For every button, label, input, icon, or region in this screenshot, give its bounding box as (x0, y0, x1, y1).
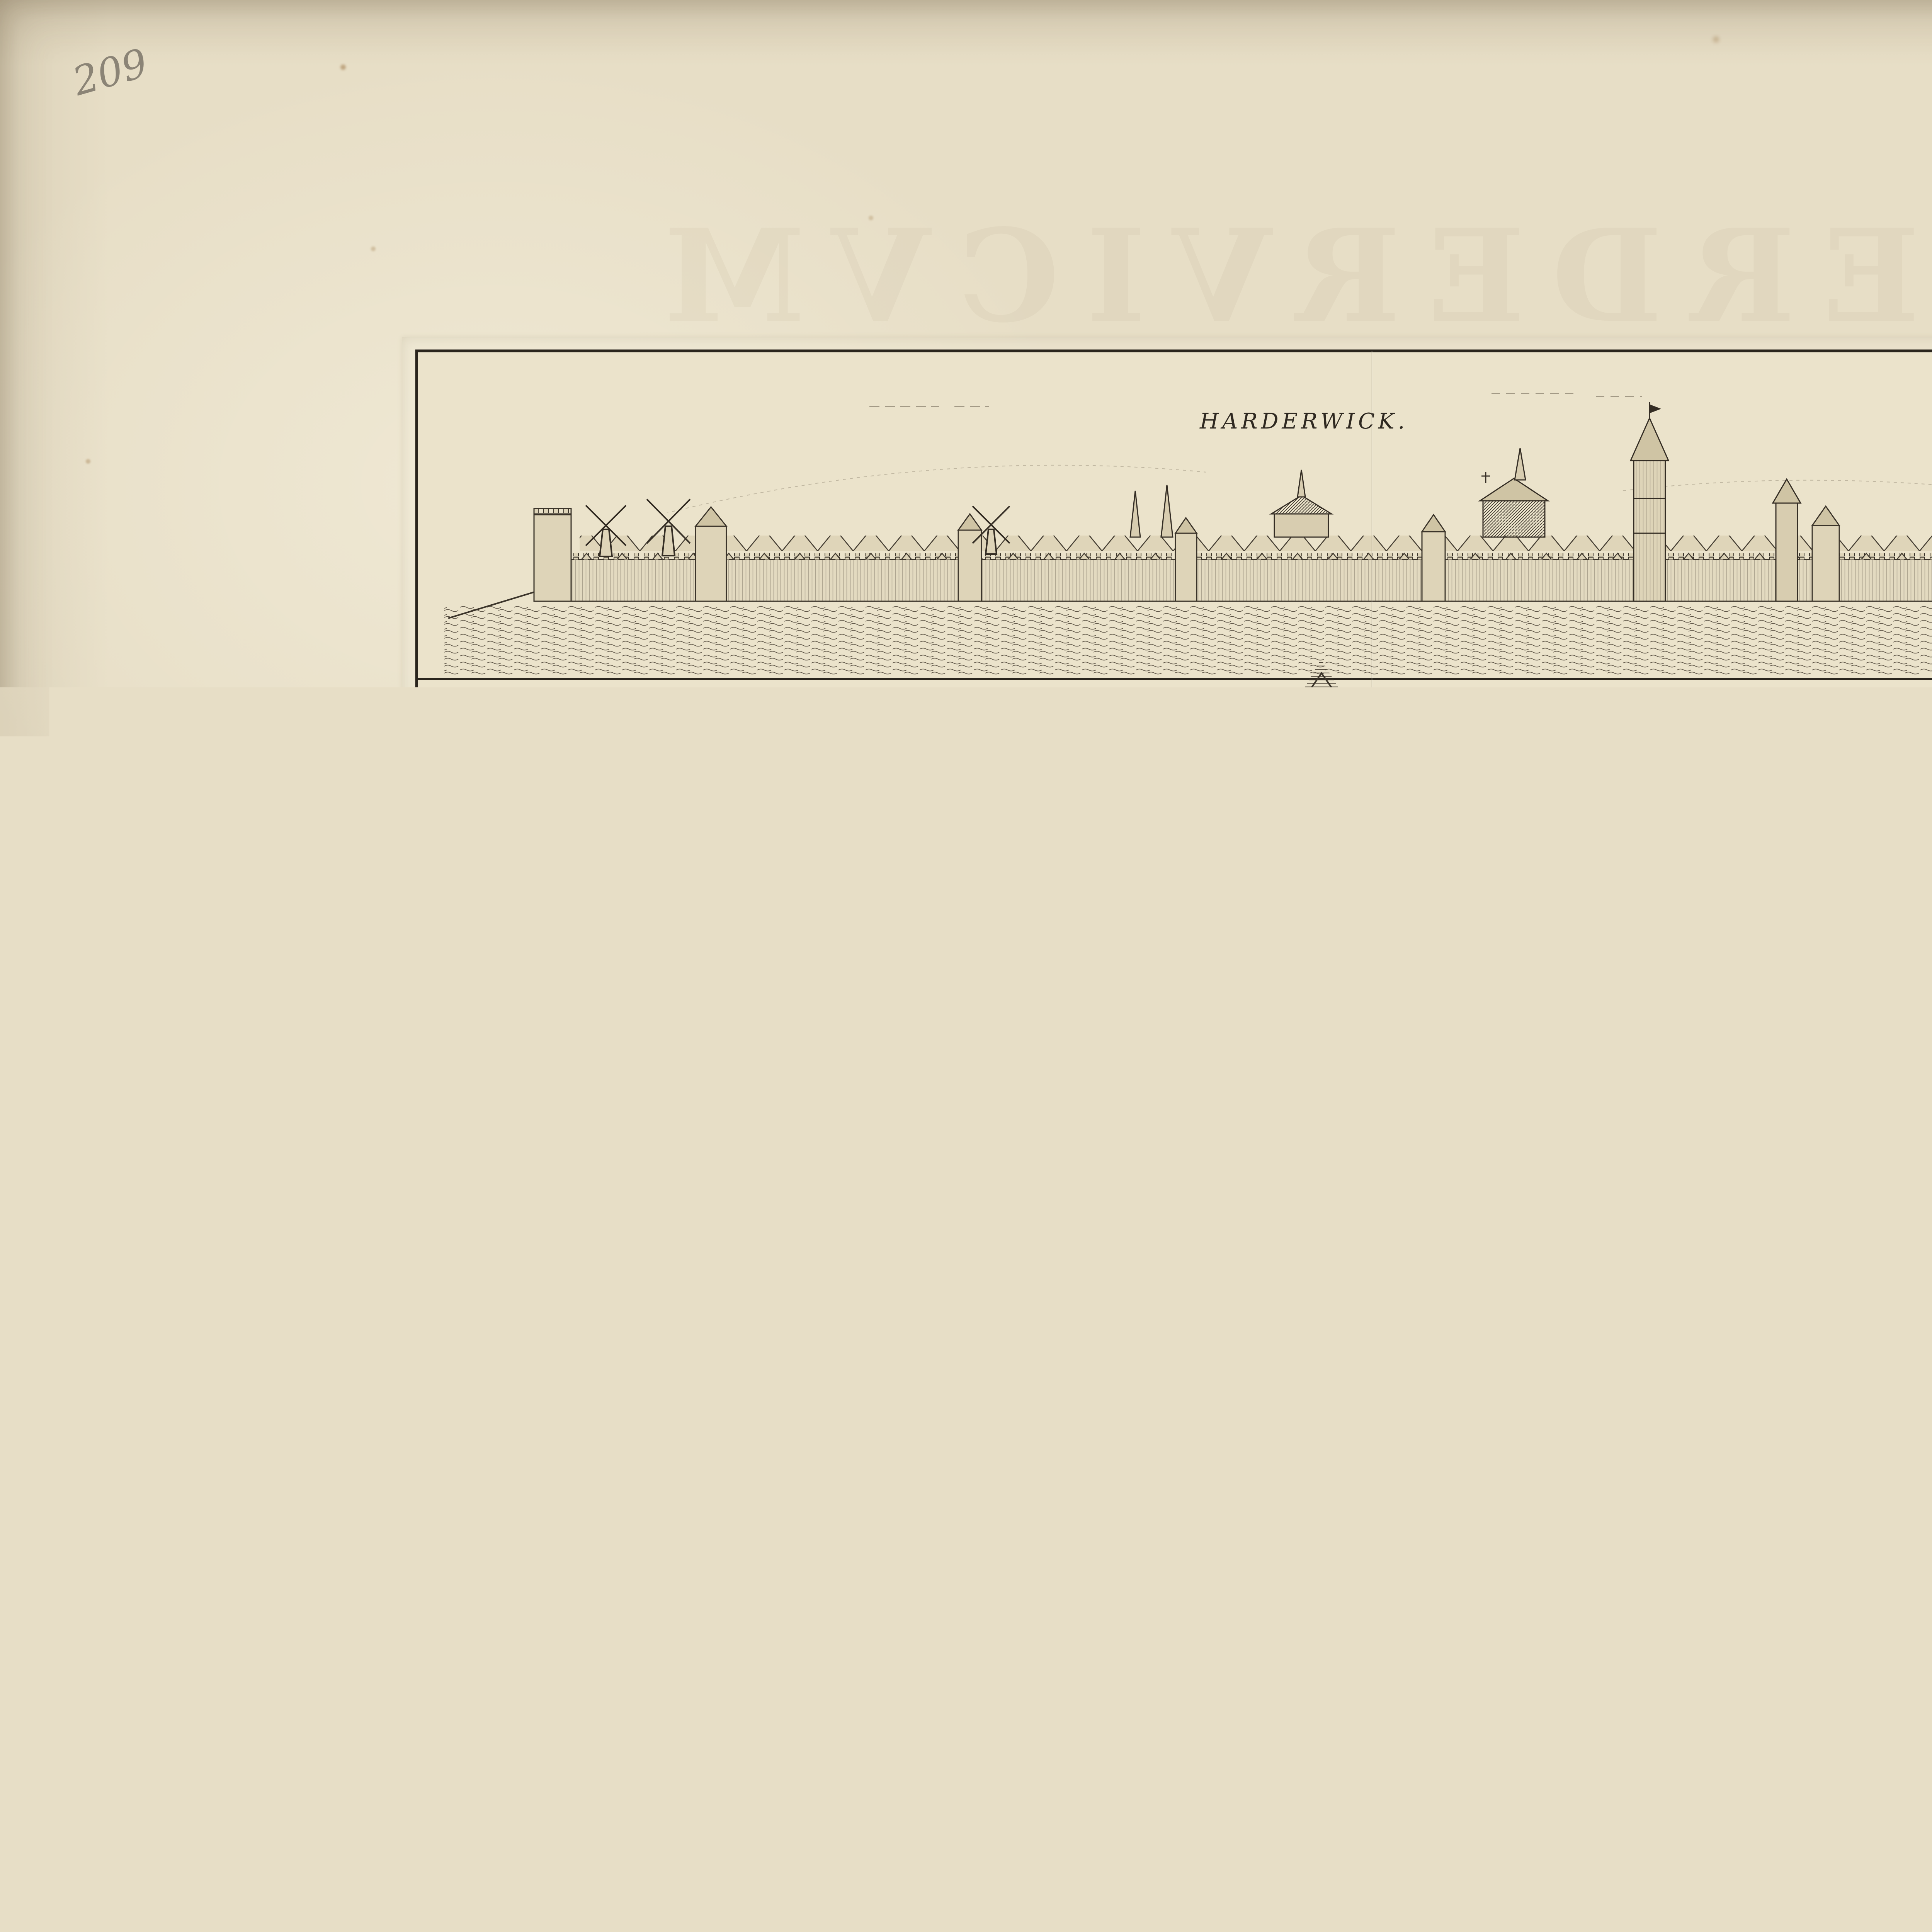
street-number: 15 (433, 978, 453, 996)
street-number: 33 (656, 778, 676, 796)
street-name: Brugh straet (453, 961, 536, 976)
street-name: de Hooge straet (546, 779, 650, 794)
street-legend-item: 35Groot oosterwyck (656, 814, 857, 832)
street-name: Schomaeker straet (546, 925, 668, 940)
plate-reference: Pag. 39. Lib. 1. (458, 1711, 576, 1729)
street-number: 31 (656, 742, 676, 760)
street-legend-item: 38Broeren (656, 869, 857, 887)
plate-border (417, 351, 1932, 1793)
street-number: 35 (656, 814, 676, 832)
plate-impression (402, 337, 1932, 1811)
street-number: 36 (656, 832, 676, 850)
street-name: Rabben straet (453, 979, 545, 994)
street-name: Heer Aelt straetjen (546, 725, 670, 740)
street-name: Vismarckt (676, 834, 741, 849)
sea-label-part2: ZEE. (1685, 1662, 1932, 1690)
street-name: Kleen ooserwyck (676, 798, 785, 813)
gate-groote-poorte (1805, 751, 1829, 799)
street-legend-item: 26Haver straetien (526, 905, 692, 923)
street-number: 2 (433, 742, 453, 760)
street-number: 19 (526, 778, 546, 796)
street-number: 5 (433, 796, 453, 814)
street-name: Haver straetien (546, 906, 648, 922)
map-engraving (0, 0, 1932, 1932)
street-number: 22 (526, 832, 546, 850)
street-number: 20 (526, 796, 546, 814)
street-legend-item: 27Schomaeker straet (526, 923, 692, 941)
panorama-windmill-icons (586, 499, 1932, 556)
street-name: Burgh straet (453, 870, 536, 885)
street-legend-item: 36Vismarckt (656, 832, 857, 850)
klooster-church (736, 1102, 804, 1155)
street-legend-title: Namen vande straeten ende steeghen (494, 700, 914, 718)
street-number: 38 (656, 869, 676, 887)
street-name: de Snyder straet (546, 761, 654, 776)
street-number: 37 (656, 850, 676, 869)
street-legend-column-3: 30Vollers brinck31Groote marck straet32S… (656, 723, 857, 905)
street-number: 3 (433, 760, 453, 778)
street-number: 12 (433, 923, 453, 941)
street-name: de Beeke (676, 888, 735, 903)
street-name: Straetien achter de Nonnen (676, 761, 857, 776)
street-name: Vee straet (453, 834, 519, 849)
street-number: 13 (433, 941, 453, 959)
street-number: 28 (526, 941, 546, 959)
street-name: de Vrouwen straet (546, 743, 666, 758)
street-name: Groote marck straet (676, 743, 807, 758)
street-number: 24 (526, 869, 546, 887)
street-number: 10 (433, 887, 453, 905)
street-legend: Namen vande straeten ende steeghen 1Die … (431, 700, 914, 994)
handwritten-page-number: 209 (68, 40, 153, 105)
large-ship (1522, 1549, 1673, 1710)
broeren-church (1309, 1387, 1365, 1432)
street-name: Wullewever straet (546, 870, 664, 885)
street-number: 23 (526, 850, 546, 869)
street-legend-item: 28Voller straet (526, 941, 692, 959)
street-number: 25 (526, 887, 546, 905)
piers (1100, 1524, 1774, 1781)
street-number: 21 (526, 814, 546, 832)
street-name: Enge steeg (546, 834, 618, 849)
center-fold (1371, 351, 1372, 1794)
street-number: 17 (526, 742, 546, 760)
street-number: 39 (656, 887, 676, 905)
street-legend-item: 33het Oly straetien (656, 778, 857, 796)
street-number: 26 (526, 905, 546, 923)
street-number: 9 (433, 869, 453, 887)
street-legend-item: 31Groote marck straet (656, 742, 857, 760)
great-church (1627, 1159, 1790, 1287)
gardens (753, 846, 1932, 1144)
street-number: 18 (526, 760, 546, 778)
streets (734, 838, 1932, 1577)
street-legend-item: 32Straetien achter de Nonnen (656, 760, 857, 778)
show-through-text: HERDERVICVM (715, 201, 1932, 351)
edge-vignette (0, 0, 1932, 1932)
quay-towers (861, 1410, 1932, 1594)
street-legend-item: 15Rabben straet (433, 978, 585, 996)
street-number: 7 (433, 832, 453, 850)
street-number: 16 (526, 723, 546, 742)
street-name: het Oly straetien (676, 779, 784, 794)
paper-texture (0, 0, 1932, 1932)
street-legend-item: 39de Beeke (656, 887, 857, 905)
street-number: 27 (526, 923, 546, 941)
street-number: 8 (433, 850, 453, 869)
street-name: Koorn marct (676, 852, 757, 867)
street-legend-item: 29S. Annen straet (526, 959, 692, 978)
street-number: 34 (656, 796, 676, 814)
street-number: 30 (656, 723, 676, 742)
street-name: Vollers brinck (676, 725, 765, 740)
street-legend-item: 34Kleen ooserwyck (656, 796, 857, 814)
street-name: Weem straet (453, 798, 535, 813)
map-windmill-icons (679, 1013, 822, 1346)
panorama-art (444, 393, 1932, 675)
street-name: Groot oosterwyck (676, 816, 790, 831)
street-name: Munt straet (453, 852, 530, 867)
street-number: 11 (433, 905, 453, 923)
street-legend-item: 37Koorn marct (656, 850, 857, 869)
street-name: S. Annen straet (546, 961, 646, 976)
street-number: 4 (433, 778, 453, 796)
street-number: 1 (433, 723, 453, 742)
street-number: 32 (656, 760, 676, 778)
street-number: 6 (433, 814, 453, 832)
street-name: Keyser straet (546, 888, 632, 903)
street-name: Broeren (676, 870, 728, 885)
street-number: 14 (433, 959, 453, 978)
scanned-map-sheet: { "document": { "type": "engraved town m… (0, 0, 1932, 1932)
street-legend-item: 30Vollers brinck (656, 723, 857, 742)
street-name: Voller straet (546, 943, 626, 958)
sea-label-part1: DE ZUYDER (708, 1658, 1417, 1687)
foxing-spots (0, 0, 3, 3)
street-name: leege Brug straet (546, 798, 659, 813)
panorama-title: HARDERWICK. (1200, 409, 1408, 434)
gate-luttike-poorte (1271, 722, 1374, 828)
street-number: 29 (526, 959, 546, 978)
